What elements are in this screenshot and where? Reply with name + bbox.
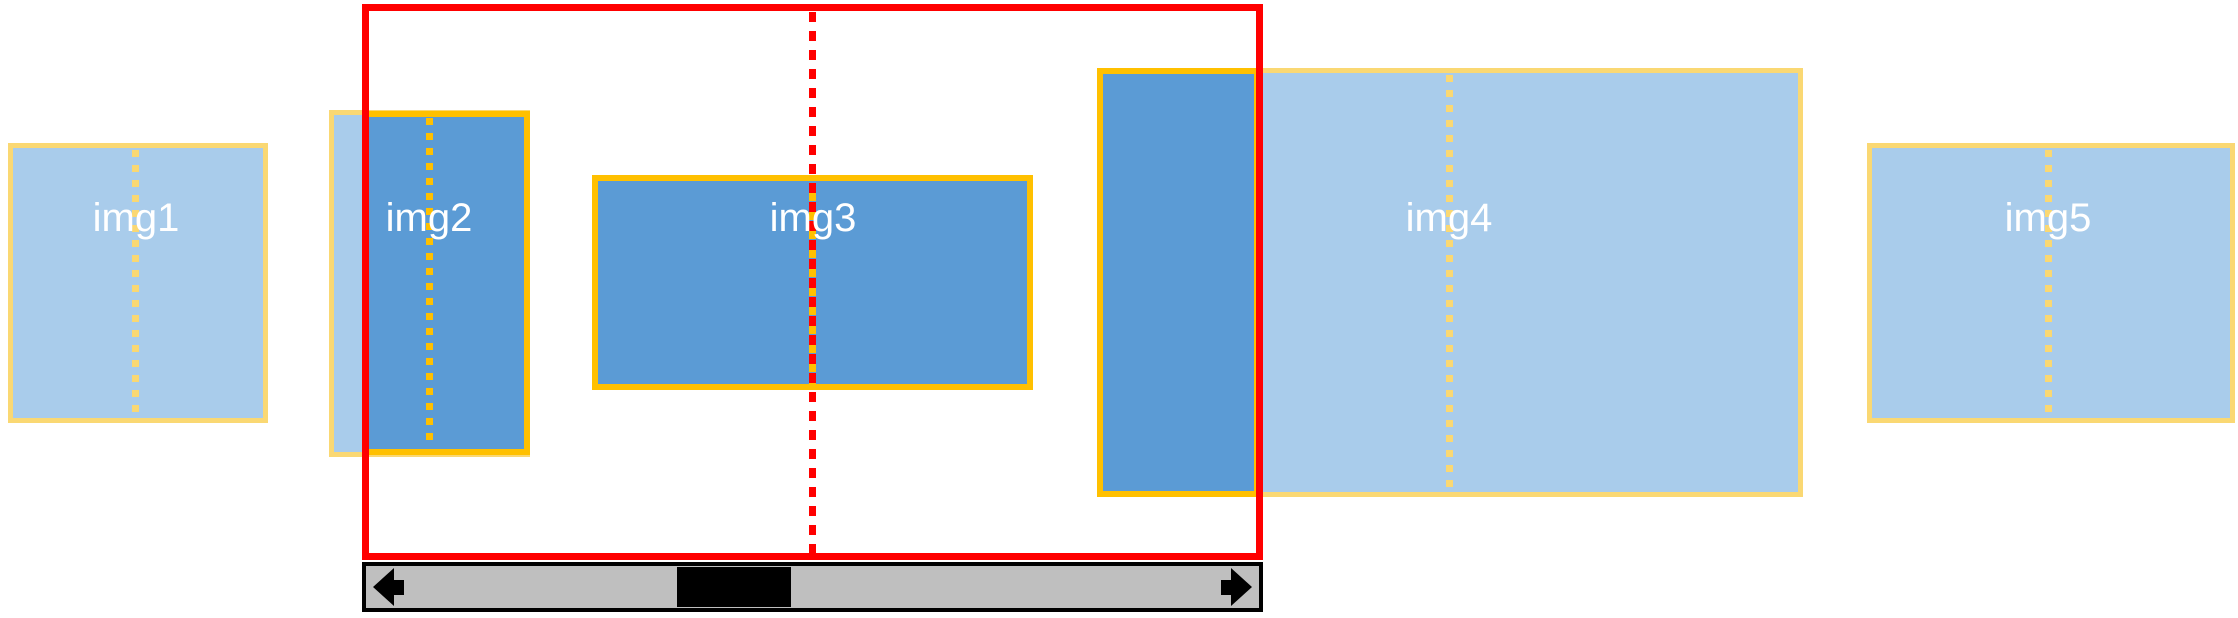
image-label-img2: img2 [386,198,473,238]
image-centerline-img4 [1446,75,1453,491]
scroll-left-arrow-icon[interactable] [373,568,406,606]
image-centerline-img5 [2045,150,2052,416]
scrollbar-thumb[interactable] [677,567,791,607]
viewport-centerline [809,12,816,553]
image-label-img3: img3 [770,198,857,238]
image-label-img5: img5 [2005,198,2092,238]
horizontal-scrollbar[interactable] [362,562,1263,612]
image-label-img1: img1 [93,198,180,238]
image-centerline-img1 [132,150,139,416]
filmstrip-viewport-diagram: img1 img2 img3 img4 img5 [0,0,2238,618]
image-label-img4: img4 [1406,198,1493,238]
scroll-right-arrow-icon[interactable] [1219,568,1252,606]
